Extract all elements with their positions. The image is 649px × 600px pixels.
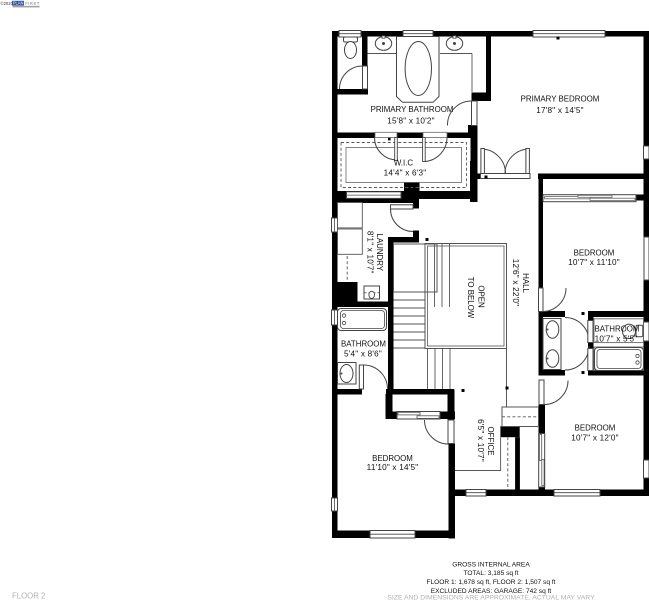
svg-text:LAUNDRY: LAUNDRY	[375, 234, 384, 272]
svg-text:PRIMARY BEDROOM: PRIMARY BEDROOM	[521, 95, 600, 104]
svg-text:BATHROOM: BATHROOM	[341, 340, 386, 349]
svg-text:W.I.C: W.I.C	[394, 159, 414, 168]
svg-text:15'8" x 10'2": 15'8" x 10'2"	[387, 117, 435, 126]
svg-text:OFFICE: OFFICE	[486, 427, 495, 456]
svg-text:BEDROOM: BEDROOM	[372, 454, 413, 463]
svg-text:OPEN: OPEN	[477, 285, 486, 308]
svg-text:10'7" x 5'5": 10'7" x 5'5"	[595, 335, 638, 344]
svg-text:BEDROOM: BEDROOM	[574, 249, 615, 258]
svg-text:10'7" x 11'10": 10'7" x 11'10"	[568, 258, 620, 267]
svg-text:TO BELOW: TO BELOW	[466, 277, 475, 319]
svg-text:FLOOR 2: FLOOR 2	[12, 592, 45, 600]
svg-text:©2020: ©2020	[1, 1, 14, 6]
svg-text:FLOOR 1: 1,678 sq ft, FLOOR 2:: FLOOR 1: 1,678 sq ft, FLOOR 2: 1,507 sq …	[426, 579, 555, 586]
svg-text:5'4" x 8'6": 5'4" x 8'6"	[344, 350, 382, 359]
svg-text:PLAN: PLAN	[13, 1, 24, 6]
svg-text:14'4" x 6'3": 14'4" x 6'3"	[384, 169, 427, 178]
svg-text:11'10" x 14'5": 11'10" x 14'5"	[367, 463, 419, 472]
svg-text:TOTAL: 3,185 sq ft: TOTAL: 3,185 sq ft	[463, 570, 518, 577]
svg-text:BEDROOM: BEDROOM	[575, 424, 616, 433]
svg-text:FIRST: FIRST	[25, 1, 40, 6]
svg-text:BATHROOM: BATHROOM	[594, 325, 639, 334]
svg-text:6'5" x 10'7": 6'5" x 10'7"	[476, 419, 485, 462]
svg-text:12'6" x 22'0": 12'6" x 22'0"	[511, 259, 520, 307]
svg-text:SIZE AND DIMENSIONS ARE APPROX: SIZE AND DIMENSIONS ARE APPROXIMATE, ACT…	[387, 595, 595, 600]
svg-text:17'8" x 14'5": 17'8" x 14'5"	[536, 106, 584, 115]
svg-text:HALL: HALL	[521, 273, 530, 293]
svg-text:10'7" x 12'0": 10'7" x 12'0"	[571, 434, 619, 443]
svg-text:GROSS INTERNAL AREA: GROSS INTERNAL AREA	[452, 561, 530, 568]
svg-text:8'1" x 10'7": 8'1" x 10'7"	[366, 231, 375, 274]
svg-text:PRIMARY BATHROOM: PRIMARY BATHROOM	[371, 105, 454, 114]
